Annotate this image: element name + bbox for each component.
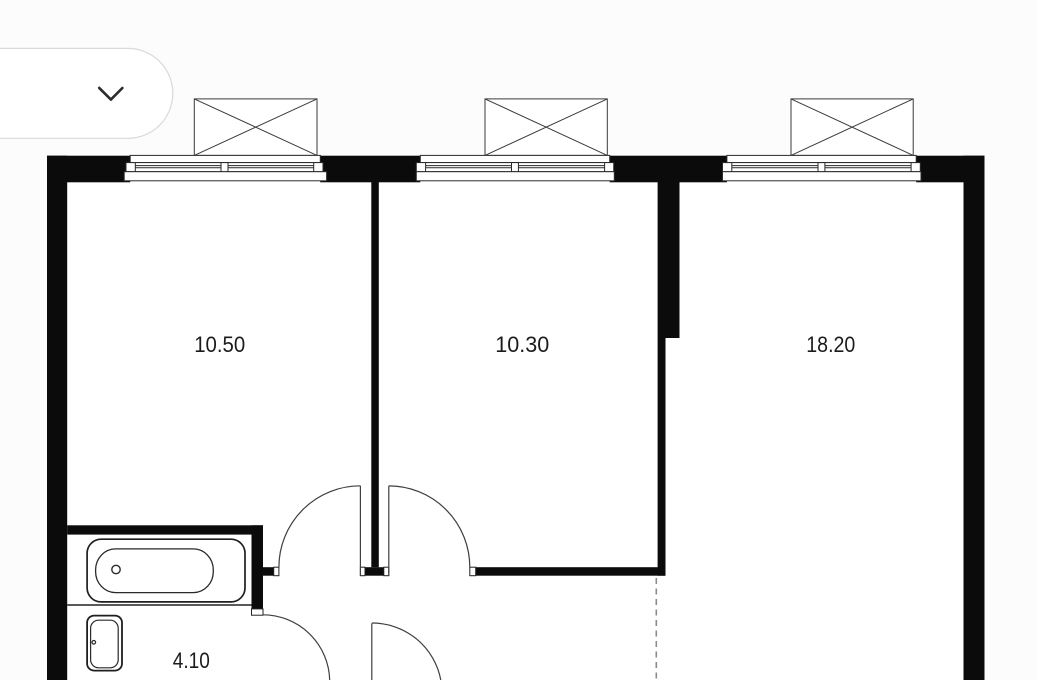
svg-text:18.20: 18.20: [806, 332, 855, 357]
svg-text:4.10: 4.10: [173, 648, 210, 673]
svg-text:10.50: 10.50: [194, 332, 245, 357]
svg-text:10.30: 10.30: [495, 332, 549, 357]
